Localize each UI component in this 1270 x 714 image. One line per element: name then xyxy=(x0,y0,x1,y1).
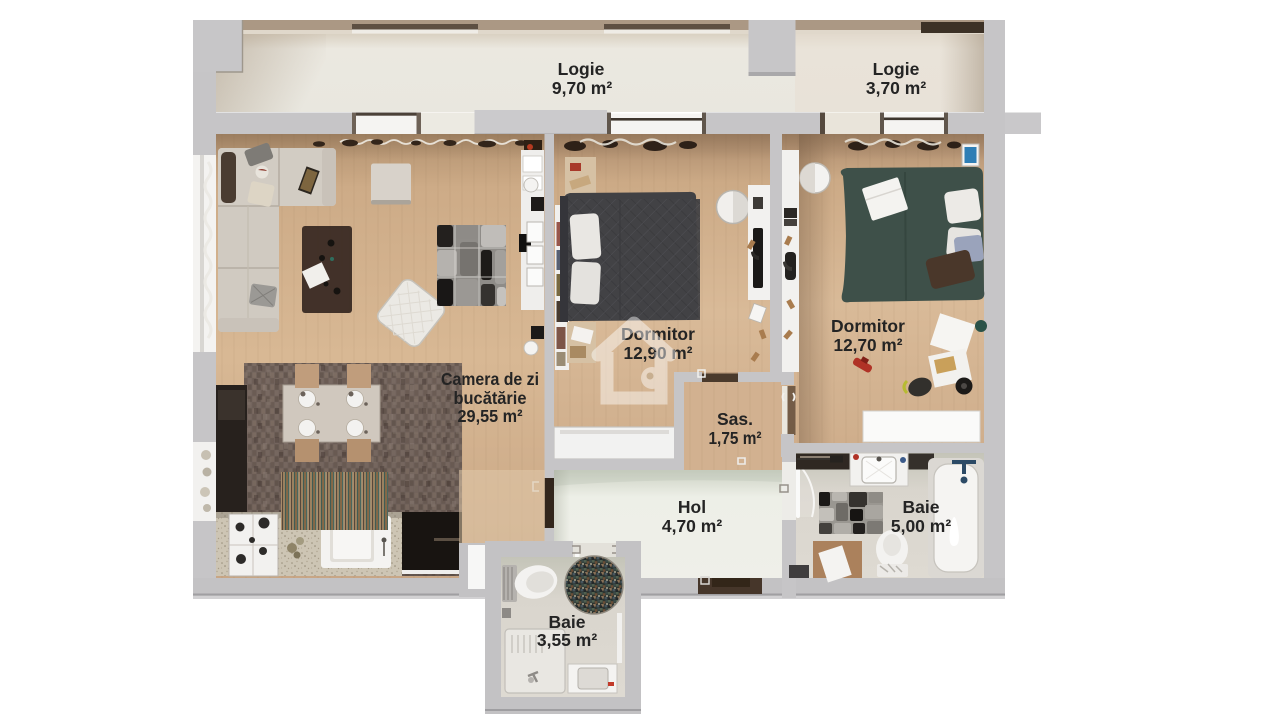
svg-text:3,70 m²: 3,70 m² xyxy=(866,78,926,98)
svg-text:bucătărie: bucătărie xyxy=(454,388,527,408)
svg-text:Camera de zi: Camera de zi xyxy=(441,369,539,389)
svg-text:Dormitor: Dormitor xyxy=(831,316,905,336)
svg-text:29,55 m²: 29,55 m² xyxy=(458,406,523,426)
svg-text:4,70 m²: 4,70 m² xyxy=(662,516,722,536)
svg-text:Logie: Logie xyxy=(558,59,605,79)
svg-text:1,75 m²: 1,75 m² xyxy=(709,428,762,448)
svg-text:Baie: Baie xyxy=(549,612,586,632)
svg-text:12,70 m²: 12,70 m² xyxy=(834,335,903,355)
svg-text:Logie: Logie xyxy=(873,59,920,79)
svg-text:Hol: Hol xyxy=(678,497,706,517)
svg-text:Baie: Baie xyxy=(903,497,940,517)
svg-text:9,70 m²: 9,70 m² xyxy=(552,78,612,98)
svg-text:Sas.: Sas. xyxy=(717,409,753,429)
svg-text:5,00 m²: 5,00 m² xyxy=(891,516,951,536)
svg-text:3,55 m²: 3,55 m² xyxy=(537,630,597,650)
